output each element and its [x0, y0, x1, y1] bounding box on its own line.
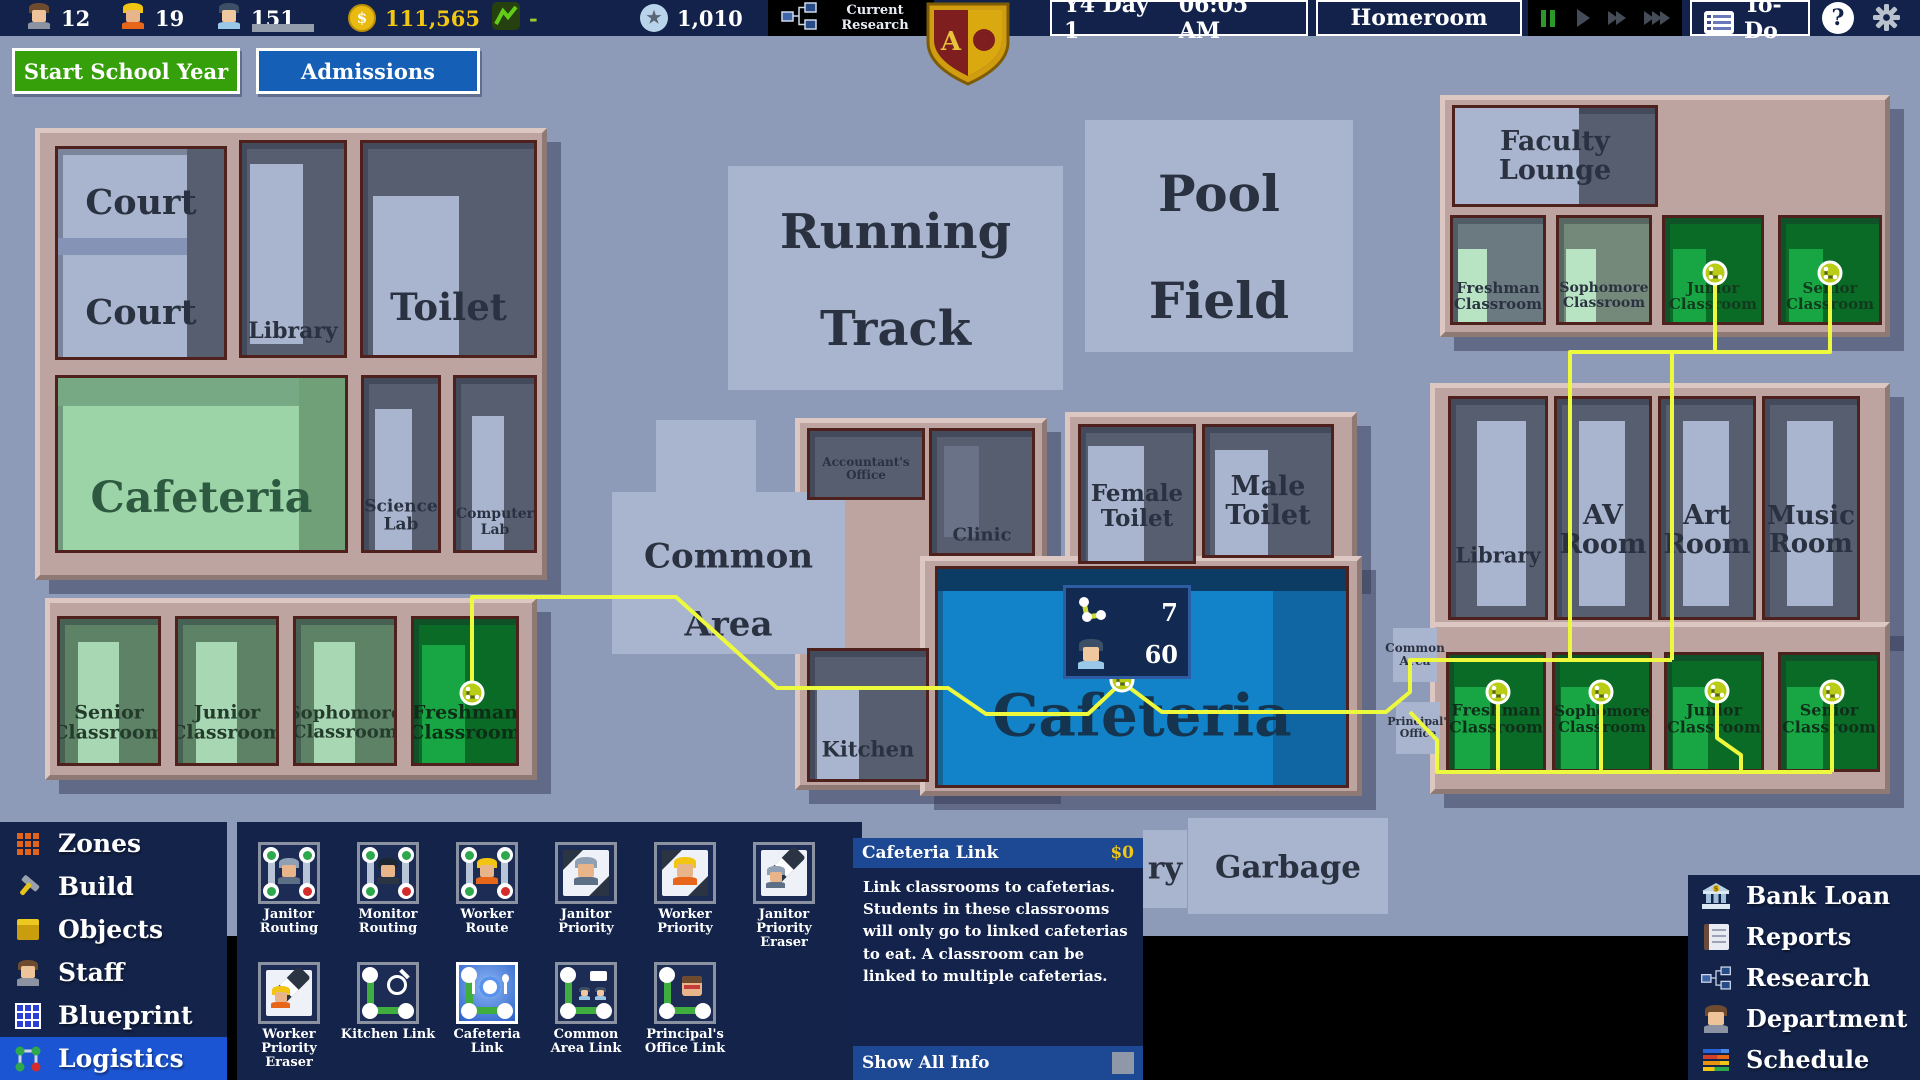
area-pool-field-label-1: Field	[1031, 274, 1406, 328]
tooltip-body: Link classrooms to cafeterias. Students …	[853, 868, 1143, 1046]
help-label: ?	[1832, 5, 1845, 31]
room-freshman-classroom-west-patch-0	[422, 645, 465, 763]
blueprint-icon	[12, 1003, 44, 1029]
area-garbage[interactable]: Garbage	[1188, 818, 1388, 914]
room-sophomore-classroom-northeast-patch-0	[1566, 249, 1596, 322]
admissions-button[interactable]: Admissions	[256, 48, 480, 94]
sidebar-item-department[interactable]: Department	[1688, 998, 1920, 1039]
room-faculty-lounge-patch-0	[1455, 108, 1579, 204]
balance-icon	[492, 2, 520, 34]
research-icon	[1700, 963, 1732, 993]
bank-loan-label: Bank Loan	[1746, 881, 1890, 910]
todo-button[interactable]: To-Do	[1690, 0, 1810, 36]
prestige-icon: ★	[640, 4, 668, 32]
tool-label-worker-route: Worker Route	[437, 908, 537, 936]
research-icon	[780, 1, 818, 35]
room-av-room[interactable]: AV Room	[1554, 396, 1652, 620]
tool-label-worker-priority: Worker Priority	[635, 908, 735, 936]
area-running-track-label: Running	[661, 207, 1130, 259]
workers-icon	[120, 3, 146, 33]
tooltip-footer: Show All Info	[853, 1046, 1143, 1080]
tool-worker-priority[interactable]	[654, 842, 716, 904]
room-sophomore-classroom-west[interactable]: Sophomore Classroom	[293, 616, 397, 766]
area-principals-office[interactable]: Principal's Office	[1396, 702, 1440, 754]
bank-loan-icon: $	[1700, 882, 1732, 910]
help-button[interactable]: ?	[1822, 2, 1854, 34]
sidebar-item-research[interactable]: Research	[1688, 957, 1920, 998]
room-cafeteria-west[interactable]: Cafeteria	[55, 375, 348, 553]
play-button[interactable]	[1577, 0, 1590, 36]
area-common-west[interactable]: CommonArea	[612, 492, 845, 654]
room-toilet-west-patch-0	[373, 196, 459, 355]
game-time: 06:05 AM	[1179, 0, 1294, 44]
room-art-room-patch-0	[1683, 421, 1729, 606]
funds-value: 111,565	[385, 6, 480, 31]
tool-label-principal-s-office-link: Principal's Office Link	[635, 1028, 735, 1056]
todo-list-icon	[1704, 3, 1734, 34]
zones-icon	[12, 831, 44, 857]
room-junior-classroom-southeast-patch-0	[1673, 687, 1709, 769]
logistics-icon	[12, 1046, 44, 1072]
area-hidden-room[interactable]: ry	[1143, 830, 1187, 908]
room-sophomore-classroom-west-patch-0	[314, 642, 355, 763]
pause-button[interactable]	[1539, 0, 1557, 36]
room-senior-classroom-west[interactable]: Senior Classroom	[57, 616, 161, 766]
balance-value: -	[529, 6, 538, 31]
stat-teachers: 12	[26, 0, 90, 36]
tool-worker-priority-eraser[interactable]	[258, 962, 320, 1024]
area-running-track-label-1: Track	[661, 304, 1130, 356]
popup-student-count: 60	[1145, 640, 1178, 669]
tool-monitor-routing[interactable]	[357, 842, 419, 904]
students-icon	[216, 3, 242, 33]
schedule-label: Schedule	[1746, 1045, 1869, 1074]
room-kitchen[interactable]: Kitchen	[807, 648, 929, 782]
area-common-west-hall[interactable]	[656, 420, 756, 494]
blueprint-label: Blueprint	[58, 1001, 193, 1030]
period-indicator: Homeroom	[1316, 0, 1522, 36]
room-female-toilet-patch-0	[1088, 446, 1144, 561]
room-toilet-west[interactable]: Toilet	[360, 140, 537, 358]
tool-label-worker-priority-eraser: Worker Priority Eraser	[239, 1028, 339, 1070]
room-freshman-classroom-northeast[interactable]: Freshman Classroom	[1450, 215, 1546, 325]
room-court[interactable]: CourtCourt	[55, 146, 227, 360]
room-sophomore-classroom-southeast[interactable]: Sophomore Classroom	[1552, 652, 1652, 772]
stat-funds: $111,565	[348, 0, 480, 36]
room-computer-lab[interactable]: Computer Lab	[453, 375, 537, 553]
period-label: Homeroom	[1351, 5, 1488, 31]
stat-prestige: ★1,010	[640, 0, 743, 36]
area-common-west-label: Common	[565, 538, 891, 575]
popup-link-count: 7	[1161, 598, 1178, 627]
room-freshman-classroom-southeast-patch-0	[1455, 687, 1491, 769]
tool-kitchen-link[interactable]	[357, 962, 419, 1024]
funds-icon: $	[348, 4, 376, 32]
tool-janitor-routing[interactable]	[258, 842, 320, 904]
build-label: Build	[58, 872, 134, 901]
staff-icon	[12, 960, 44, 986]
svg-text:$: $	[1714, 884, 1719, 893]
tool-label-janitor-routing: Janitor Routing	[239, 908, 339, 936]
tool-common-area-link[interactable]	[555, 962, 617, 1024]
tool-label-cafeteria-link: Cafeteria Link	[437, 1028, 537, 1056]
sidebar-item-blueprint[interactable]: Blueprint	[0, 994, 227, 1037]
tool-label-janitor-priority: Janitor Priority	[536, 908, 636, 936]
tooltip-cost: $0	[1110, 843, 1134, 863]
room-sophomore-classroom-southeast-patch-0	[1561, 687, 1597, 769]
room-junior-classroom-northeast[interactable]: Junior Classroom	[1662, 215, 1764, 325]
room-science-lab-patch-0	[375, 409, 412, 550]
room-male-toilet[interactable]: Male Toilet	[1202, 424, 1334, 558]
popup-links-row: 7	[1076, 595, 1178, 629]
tool-cafeteria-link[interactable]	[456, 962, 518, 1024]
sidebar-item-reports[interactable]: Reports	[1688, 916, 1920, 957]
map: RunningTrackPoolFieldCommonAreaGarbagery…	[0, 0, 1920, 936]
right-menu-panel: $Bank LoanReportsResearchDepartmentSched…	[1688, 875, 1920, 1080]
room-sophomore-classroom-northeast[interactable]: Sophomore Classroom	[1556, 215, 1652, 325]
department-label: Department	[1746, 1004, 1907, 1033]
room-court-patch-0	[187, 149, 224, 357]
fast-forward-button[interactable]	[1610, 0, 1626, 36]
left-menu-panel: ZonesBuildObjectsStaffBlueprintLogistics	[0, 822, 227, 1080]
svg-text:A: A	[940, 27, 962, 57]
tool-label-kitchen-link: Kitchen Link	[338, 1028, 438, 1042]
teachers-value: 12	[61, 6, 90, 31]
area-pool-field[interactable]: PoolField	[1085, 120, 1353, 352]
area-pool-field-label: Pool	[1031, 167, 1406, 221]
research-label: Research	[1746, 963, 1870, 992]
area-principals-office-label: Principal's Office	[1387, 716, 1449, 740]
room-junior-classroom-northeast-patch-0	[1673, 249, 1707, 322]
sidebar-item-bank-loan[interactable]: $Bank Loan	[1688, 875, 1920, 916]
start-school-year-label: Start School Year	[24, 59, 228, 84]
game-date: Y4 Day 1	[1064, 0, 1169, 44]
room-clinic-patch-0	[944, 446, 979, 538]
logistics-label: Logistics	[58, 1044, 184, 1073]
room-freshman-classroom-southeast[interactable]: Freshman Classroom	[1446, 652, 1546, 772]
area-garbage-label: Garbage	[1148, 851, 1428, 884]
room-senior-classroom-northeast[interactable]: Senior Classroom	[1778, 215, 1882, 325]
sidebar-item-zones[interactable]: Zones	[0, 822, 227, 865]
cafeteria-info-popup: 7 60	[1063, 585, 1191, 679]
date-time-display: Y4 Day 1 06:05 AM	[1050, 0, 1308, 36]
room-clinic[interactable]: Clinic	[929, 428, 1035, 556]
tool-label-monitor-routing: Monitor Routing	[338, 908, 438, 936]
department-icon	[1700, 1005, 1732, 1033]
show-all-info-label: Show All Info	[862, 1053, 990, 1073]
stat-workers: 19	[120, 0, 184, 36]
student-count-icon	[1076, 639, 1106, 669]
room-accountants-office[interactable]: Accountant's Office	[807, 428, 925, 500]
room-library-east[interactable]: Library	[1448, 396, 1548, 620]
settings-gear-button[interactable]	[1872, 3, 1902, 33]
tool-label-janitor-priority-eraser: Janitor Priority Eraser	[734, 908, 834, 950]
room-computer-lab-patch-0	[472, 416, 505, 550]
area-hidden-room-label: ry	[1134, 852, 1196, 885]
room-junior-classroom-west[interactable]: Junior Classroom	[175, 616, 279, 766]
tooltip-header: Cafeteria Link $0	[853, 838, 1143, 868]
logistics-toolbar: Janitor Routing Monitor Routing Worker R…	[237, 822, 862, 1080]
room-music-room-patch-0	[1787, 421, 1833, 606]
area-common-west-label-1: Area	[565, 606, 891, 643]
prestige-value: 1,010	[677, 6, 743, 31]
stat-balance: -	[492, 0, 538, 36]
objects-label: Objects	[58, 915, 163, 944]
room-library-west[interactable]: Library	[239, 140, 347, 358]
room-junior-classroom-west-patch-0	[196, 642, 237, 763]
todo-label: To-Do	[1744, 0, 1796, 44]
room-senior-classroom-west-patch-0	[78, 642, 119, 763]
room-accountants-office-label: Accountant's Office	[807, 456, 925, 482]
tool-principal-s-office-link[interactable]	[654, 962, 716, 1024]
room-senior-classroom-southeast[interactable]: Senior Classroom	[1778, 652, 1880, 772]
build-icon	[12, 874, 44, 900]
students-capacity-bar	[252, 24, 314, 32]
room-freshman-classroom-northeast-patch-0	[1458, 249, 1488, 322]
schedule-icon	[1700, 1049, 1732, 1071]
room-music-room[interactable]: Music Room	[1762, 396, 1860, 620]
reports-label: Reports	[1746, 922, 1851, 951]
room-art-room[interactable]: Art Room	[1658, 396, 1756, 620]
area-common-east-label: Common Area	[1384, 642, 1446, 668]
sidebar-item-schedule[interactable]: Schedule	[1688, 1039, 1920, 1080]
room-male-toilet-patch-0	[1215, 450, 1268, 555]
tooltip-title: Cafeteria Link	[862, 843, 998, 863]
workers-value: 19	[155, 6, 184, 31]
objects-icon	[12, 919, 44, 940]
sidebar-item-staff[interactable]: Staff	[0, 951, 227, 994]
sidebar-item-objects[interactable]: Objects	[0, 908, 227, 951]
room-av-room-patch-0	[1579, 421, 1625, 606]
tool-janitor-priority-eraser[interactable]	[753, 842, 815, 904]
room-senior-classroom-northeast-patch-0	[1789, 249, 1823, 322]
stat-students: 151	[216, 0, 295, 36]
room-cafeteria-west-patch-1	[299, 378, 345, 550]
playback-controls	[1528, 0, 1682, 36]
school-crest: A	[920, 0, 1016, 88]
zones-label: Zones	[58, 829, 141, 858]
area-common-east[interactable]: Common Area	[1393, 628, 1437, 682]
reports-icon	[1700, 924, 1732, 950]
area-running-track[interactable]: RunningTrack	[728, 166, 1063, 390]
research-label: Current Research	[828, 3, 922, 33]
room-library-west-patch-0	[250, 164, 303, 344]
sidebar-item-build[interactable]: Build	[0, 865, 227, 908]
admissions-label: Admissions	[301, 59, 435, 84]
fastest-forward-button[interactable]	[1646, 0, 1670, 36]
room-science-lab[interactable]: Science Lab	[361, 375, 441, 553]
staff-label: Staff	[58, 958, 124, 987]
tool-janitor-priority[interactable]	[555, 842, 617, 904]
link-count-icon	[1076, 595, 1106, 629]
cafeteria-link-tooltip: Cafeteria Link $0 Link classrooms to caf…	[853, 838, 1143, 1080]
room-junior-classroom-southeast[interactable]: Junior Classroom	[1664, 652, 1764, 772]
room-cafeteria-center-patch-1	[1273, 591, 1346, 785]
room-kitchen-patch-0	[817, 687, 859, 779]
current-research-button[interactable]: Current Research	[768, 0, 934, 36]
teachers-icon	[26, 3, 52, 33]
popup-students-row: 60	[1076, 639, 1178, 669]
room-court-patch-1	[58, 238, 187, 255]
room-freshman-classroom-west[interactable]: Freshman Classroom	[411, 616, 519, 766]
room-senior-classroom-southeast-patch-0	[1787, 687, 1823, 769]
start-school-year-button[interactable]: Start School Year	[12, 48, 240, 94]
sidebar-item-logistics[interactable]: Logistics	[0, 1037, 227, 1080]
room-female-toilet[interactable]: Female Toilet	[1078, 424, 1196, 564]
room-faculty-lounge[interactable]: Faculty Lounge	[1452, 105, 1658, 207]
tool-worker-route[interactable]	[456, 842, 518, 904]
show-all-info-checkbox[interactable]	[1112, 1052, 1134, 1074]
tool-label-common-area-link: Common Area Link	[536, 1028, 636, 1056]
room-library-east-patch-0	[1477, 421, 1526, 606]
